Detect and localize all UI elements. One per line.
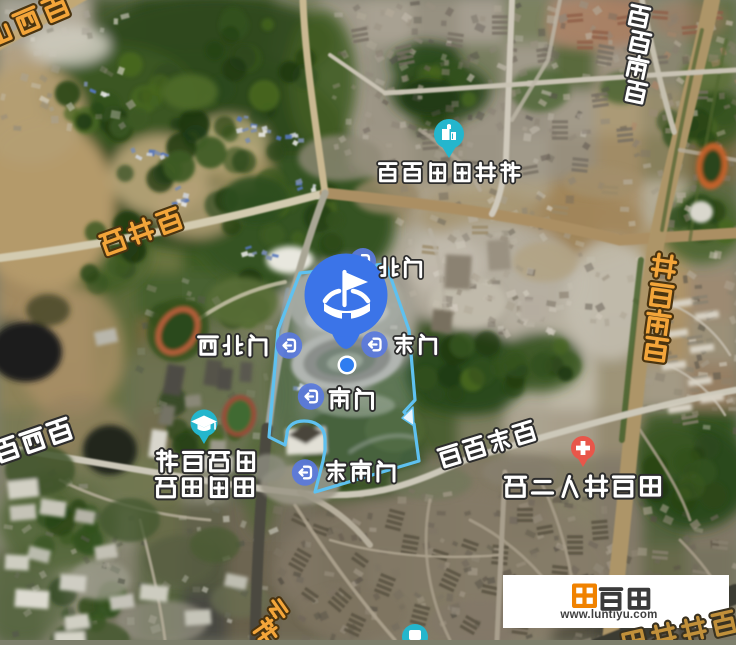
- svg-text:www.luntiyu.com: www.luntiyu.com: [559, 609, 657, 621]
